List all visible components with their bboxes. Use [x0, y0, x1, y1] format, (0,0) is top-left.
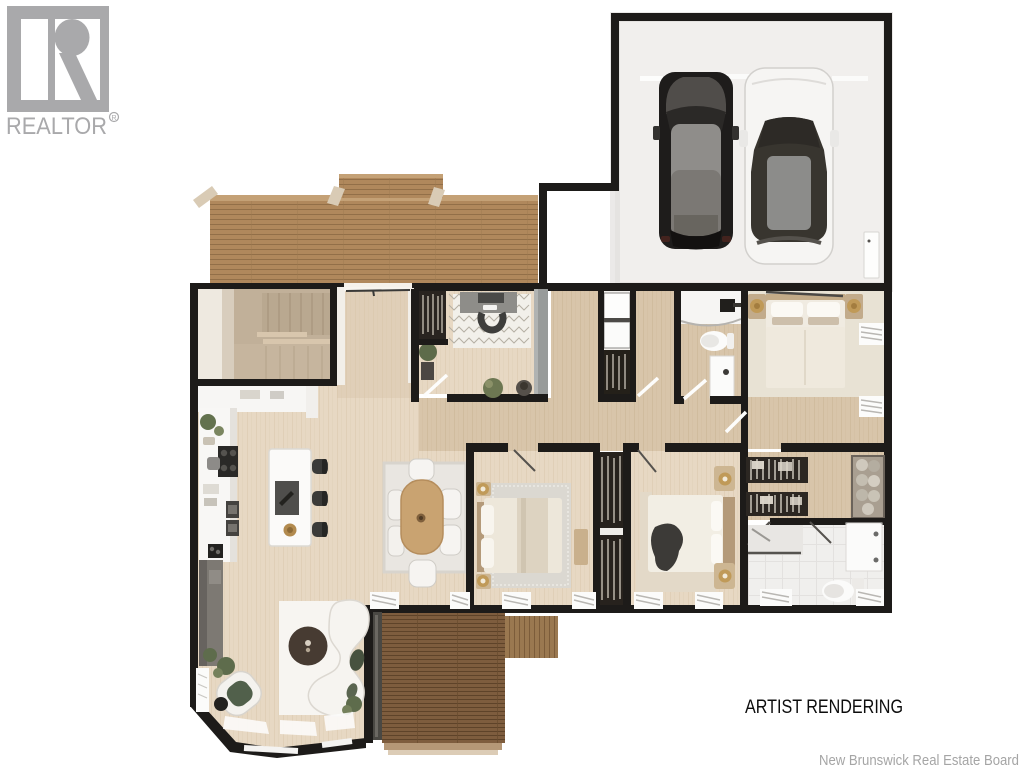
svg-text:REALTOR: REALTOR	[6, 113, 107, 140]
svg-text:New Brunswick Real Estate Boar: New Brunswick Real Estate Board	[819, 753, 1019, 768]
svg-text:R: R	[112, 115, 117, 122]
svg-text:ARTIST RENDERING: ARTIST RENDERING	[745, 697, 903, 718]
